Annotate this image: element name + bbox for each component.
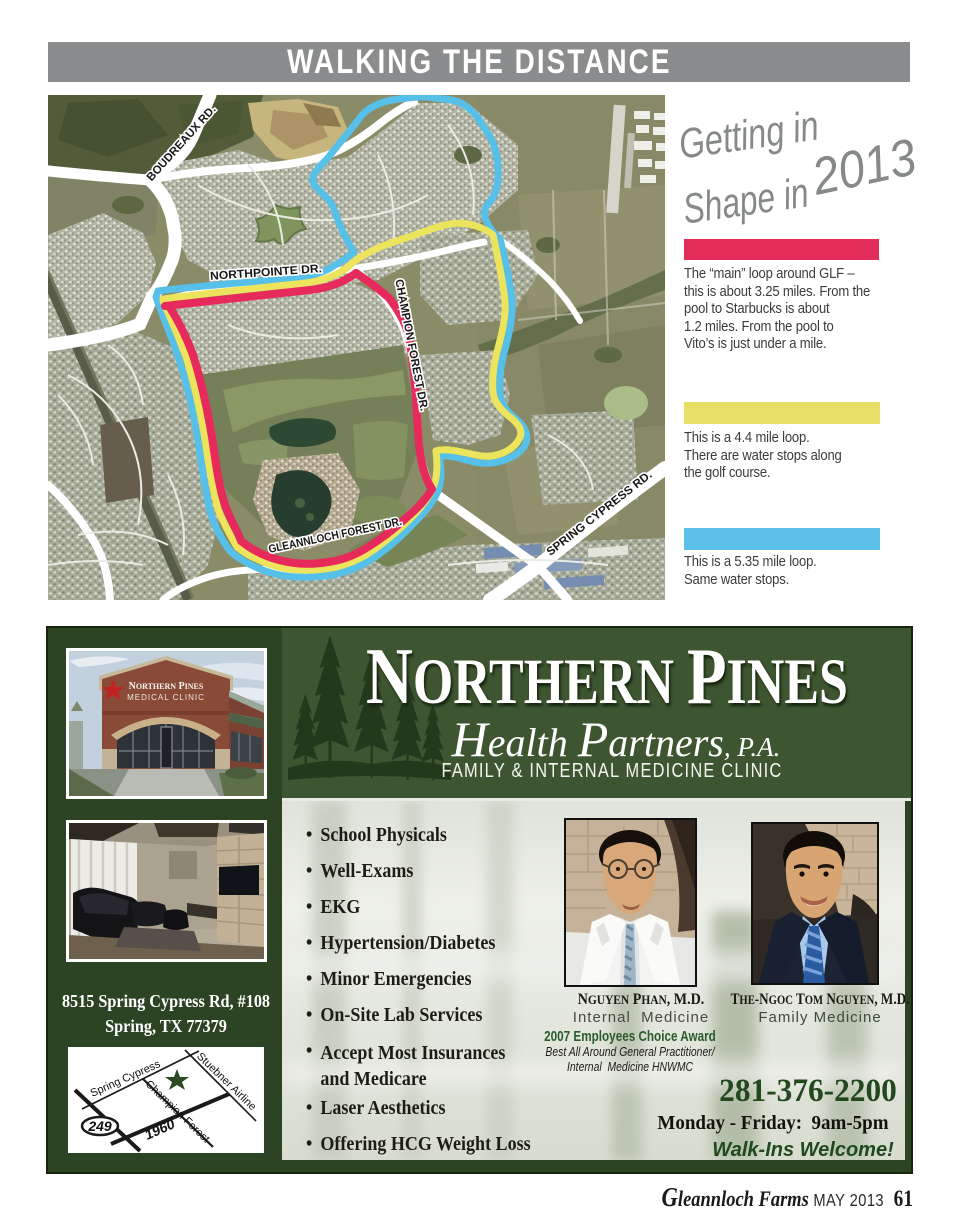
- svg-text:MEDICAL CLINIC: MEDICAL CLINIC: [127, 693, 205, 702]
- svg-text:249: 249: [87, 1118, 112, 1134]
- svg-text:NORTHERN PINES: NORTHERN PINES: [129, 681, 204, 692]
- svg-text:1960: 1960: [142, 1115, 177, 1142]
